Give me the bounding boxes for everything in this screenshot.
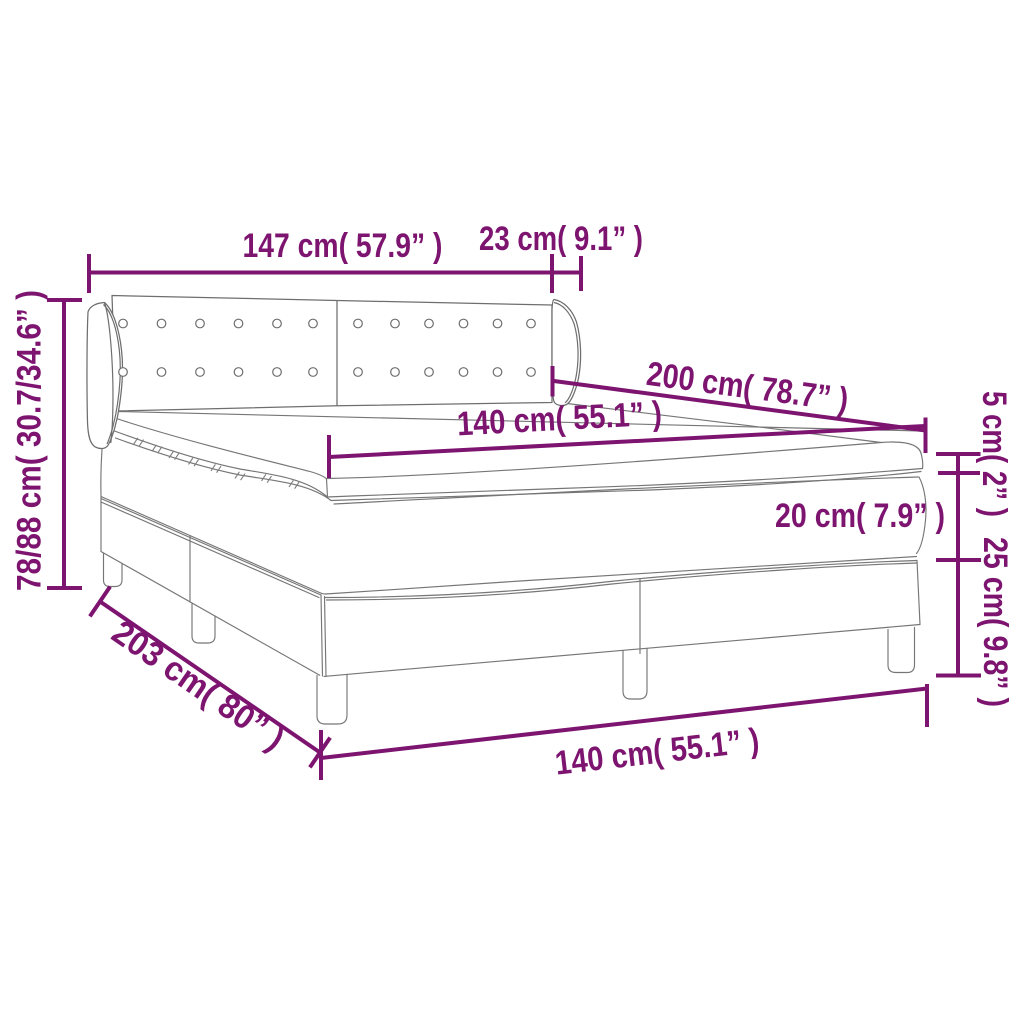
- svg-text:147 cm( 57.9” ): 147 cm( 57.9” ): [243, 227, 443, 265]
- svg-text:20 cm( 7.9” ): 20 cm( 7.9” ): [775, 497, 945, 535]
- svg-text:25 cm( 9.8” ): 25 cm( 9.8” ): [976, 537, 1014, 707]
- svg-text:5 cm( 2” ): 5 cm( 2” ): [975, 391, 1013, 517]
- svg-text:78/88 cm( 30.7/34.6” ): 78/88 cm( 30.7/34.6” ): [11, 290, 49, 591]
- svg-text:23 cm( 9.1” ): 23 cm( 9.1” ): [479, 220, 643, 258]
